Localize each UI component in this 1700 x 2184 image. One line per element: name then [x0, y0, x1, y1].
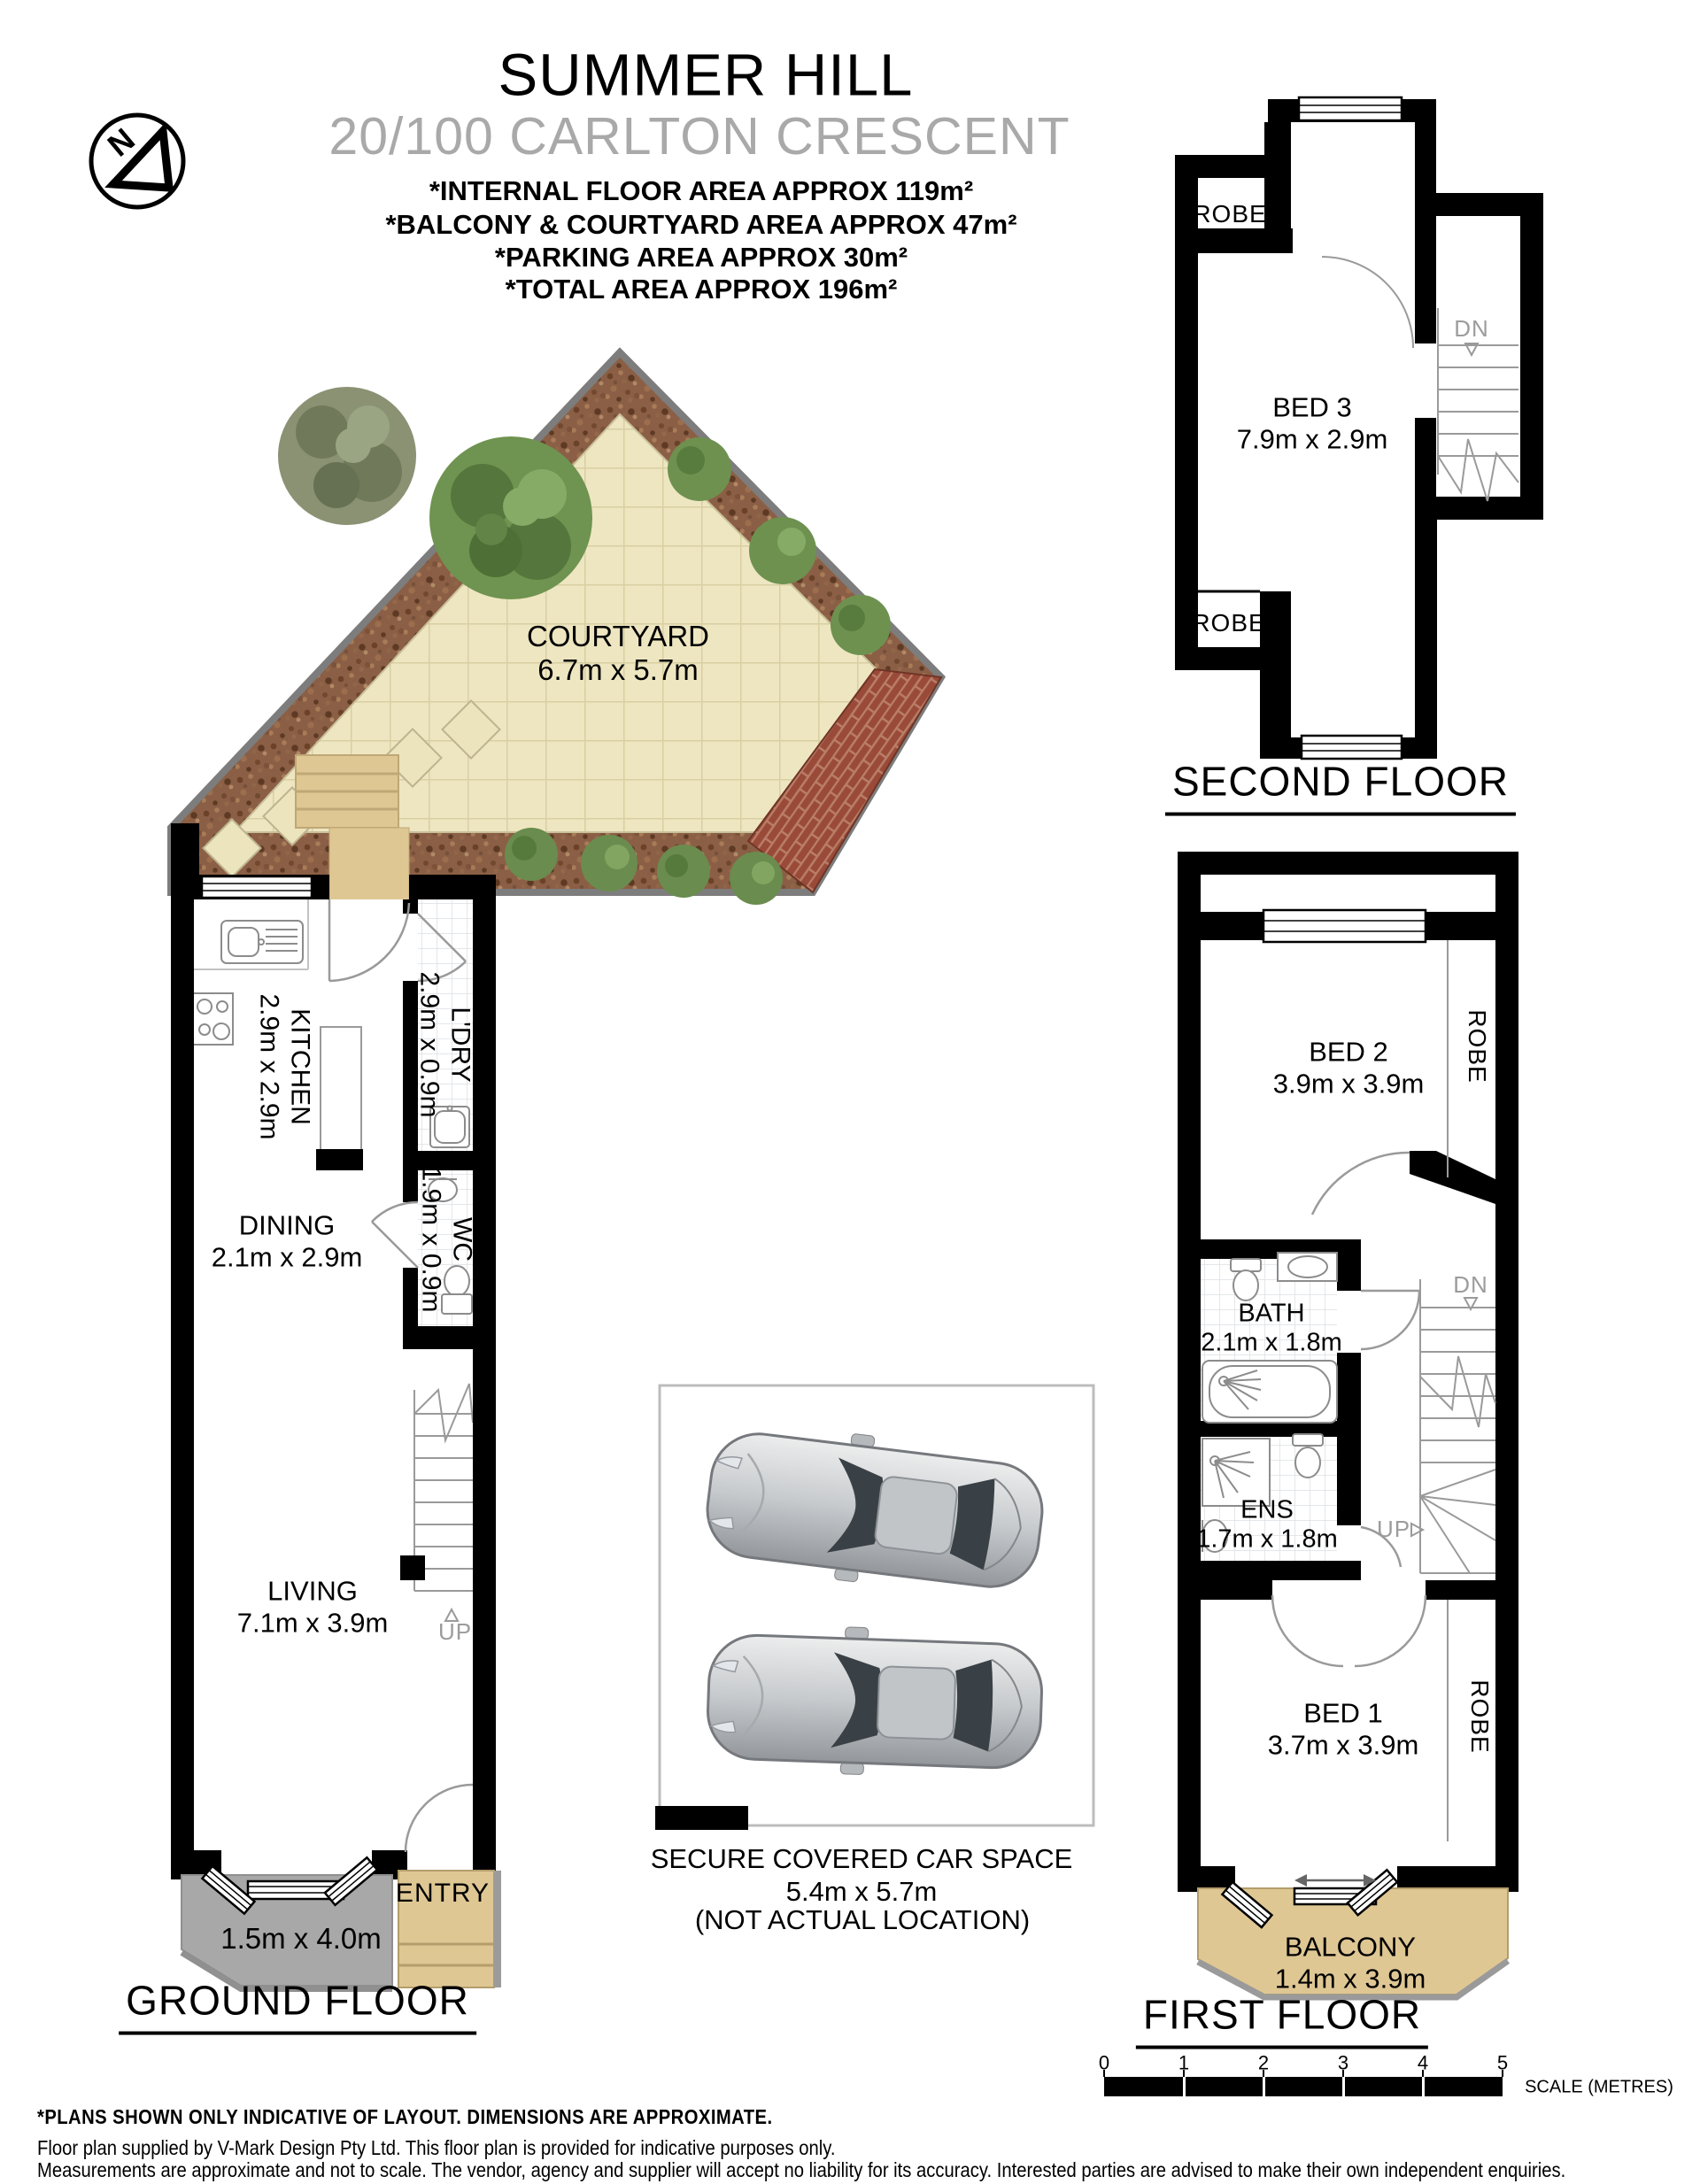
bed1-name: BED 1 [1268, 1697, 1419, 1729]
courtyard-name: COURTYARD [527, 620, 709, 653]
first-floor-title: FIRST FLOOR [1136, 1992, 1428, 2049]
bed3-dims: 7.9m x 2.9m [1237, 423, 1388, 455]
dining-label: DINING 2.1m x 2.9m [212, 1209, 363, 1272]
scale-tick-2: 2 [1258, 2051, 1269, 2073]
disclaimer-line1: *PLANS SHOWN ONLY INDICATIVE OF LAYOUT. … [37, 2105, 773, 2129]
scale-bar [1104, 2070, 1503, 2096]
laundry-name: L'DRY [444, 971, 475, 1117]
porch-dims-label: 1.5m x 4.0m [220, 1922, 382, 1956]
bath-label: BATH 2.1m x 1.8m [1201, 1300, 1342, 1359]
car-bottom [706, 1622, 1044, 1780]
kitchen-label: KITCHEN 2.9m x 2.9m [254, 993, 315, 1139]
bed2-dims: 3.9m x 3.9m [1273, 1068, 1425, 1100]
bath-dims: 2.1m x 1.8m [1201, 1329, 1342, 1358]
car-space-box [655, 1385, 1093, 1830]
address-subtitle: 20/100 CARLTON CRESCENT [328, 107, 1070, 167]
second-floor-title: SECOND FLOOR [1165, 759, 1516, 816]
living-name: LIVING [237, 1575, 389, 1607]
wc-dims: 1.9m x 0.9m [416, 1166, 447, 1312]
area-line-parking: *PARKING AREA APPROX 30m² [495, 242, 908, 274]
disclaimer-line2: Floor plan supplied by V-Mark Design Pty… [37, 2136, 836, 2160]
north-compass-icon [91, 115, 183, 207]
bed2-label: BED 2 3.9m x 3.9m [1273, 1036, 1425, 1099]
second-robe-upper-label: ROBE [1193, 200, 1266, 228]
dining-name: DINING [212, 1209, 363, 1241]
ensuite-label: ENS 1.7m x 1.8m [1196, 1496, 1338, 1555]
living-dims: 7.1m x 3.9m [237, 1607, 389, 1639]
car-space-line2: 5.4m x 5.7m [786, 1876, 938, 1908]
bed3-name: BED 3 [1237, 391, 1388, 423]
living-label: LIVING 7.1m x 3.9m [237, 1575, 389, 1638]
scale-tick-1: 1 [1178, 2051, 1189, 2073]
page-title: SUMMER HILL [498, 41, 914, 109]
ground-floor-title: GROUND FLOOR [119, 1978, 476, 2035]
kitchen-name: KITCHEN [284, 993, 315, 1139]
bed1-label: BED 1 3.7m x 3.9m [1268, 1697, 1419, 1760]
courtyard-label: COURTYARD 6.7m x 5.7m [527, 620, 709, 687]
scale-tick-3: 3 [1338, 2051, 1348, 2073]
entry-label: ENTRY [396, 1879, 490, 1910]
second-robe-lower-label: ROBE [1192, 609, 1265, 637]
scale-tick-5: 5 [1497, 2051, 1508, 2073]
courtyard-dims: 6.7m x 5.7m [527, 653, 709, 687]
laundry-label: L'DRY 2.9m x 0.9m [414, 971, 475, 1117]
bed1-dims: 3.7m x 3.9m [1268, 1729, 1419, 1761]
first-stairs-up-label: UP [1377, 1516, 1410, 1543]
first-robe-upper-label: ROBE [1463, 1009, 1491, 1083]
first-robe-lower-label: ROBE [1465, 1679, 1494, 1753]
dining-dims: 2.1m x 2.9m [212, 1241, 363, 1273]
balcony-dims: 1.4m x 3.9m [1275, 1963, 1426, 1995]
laundry-dims: 2.9m x 0.9m [414, 971, 445, 1117]
bath-name: BATH [1201, 1300, 1342, 1329]
bed2-name: BED 2 [1273, 1036, 1425, 1068]
area-line-total: *TOTAL AREA APPROX 196m² [506, 274, 898, 305]
scale-caption: SCALE (METRES) [1525, 2078, 1673, 2098]
scale-tick-4: 4 [1418, 2051, 1428, 2073]
balcony-label: BALCONY 1.4m x 3.9m [1275, 1931, 1426, 1994]
second-stairs-down-label: DN [1454, 316, 1489, 343]
car-space-line3: (NOT ACTUAL LOCATION) [695, 1904, 1030, 1936]
wc-label: WC 1.9m x 0.9m [416, 1166, 477, 1312]
car-space-line1: SECURE COVERED CAR SPACE [651, 1843, 1073, 1875]
ensuite-name: ENS [1196, 1496, 1338, 1525]
scale-tick-0: 0 [1099, 2051, 1109, 2073]
first-stairs-down-label: DN [1453, 1272, 1488, 1299]
ground-stairs-up-label: UP [438, 1619, 472, 1646]
area-line-balcony-courtyard: *BALCONY & COURTYARD AREA APPROX 47m² [385, 209, 1016, 241]
balcony-name: BALCONY [1275, 1931, 1426, 1963]
kitchen-dims: 2.9m x 2.9m [254, 993, 285, 1139]
wc-name: WC [446, 1166, 477, 1312]
bed3-label: BED 3 7.9m x 2.9m [1237, 391, 1388, 454]
disclaimer-line3: Measurements are approximate and not to … [37, 2158, 1565, 2182]
floorplan-page: N SUMMER HILL 20/100 CARLTON CRESCENT *I… [0, 0, 1700, 2184]
ensuite-dims: 1.7m x 1.8m [1196, 1525, 1338, 1555]
area-line-internal: *INTERNAL FLOOR AREA APPROX 119m² [429, 175, 973, 207]
